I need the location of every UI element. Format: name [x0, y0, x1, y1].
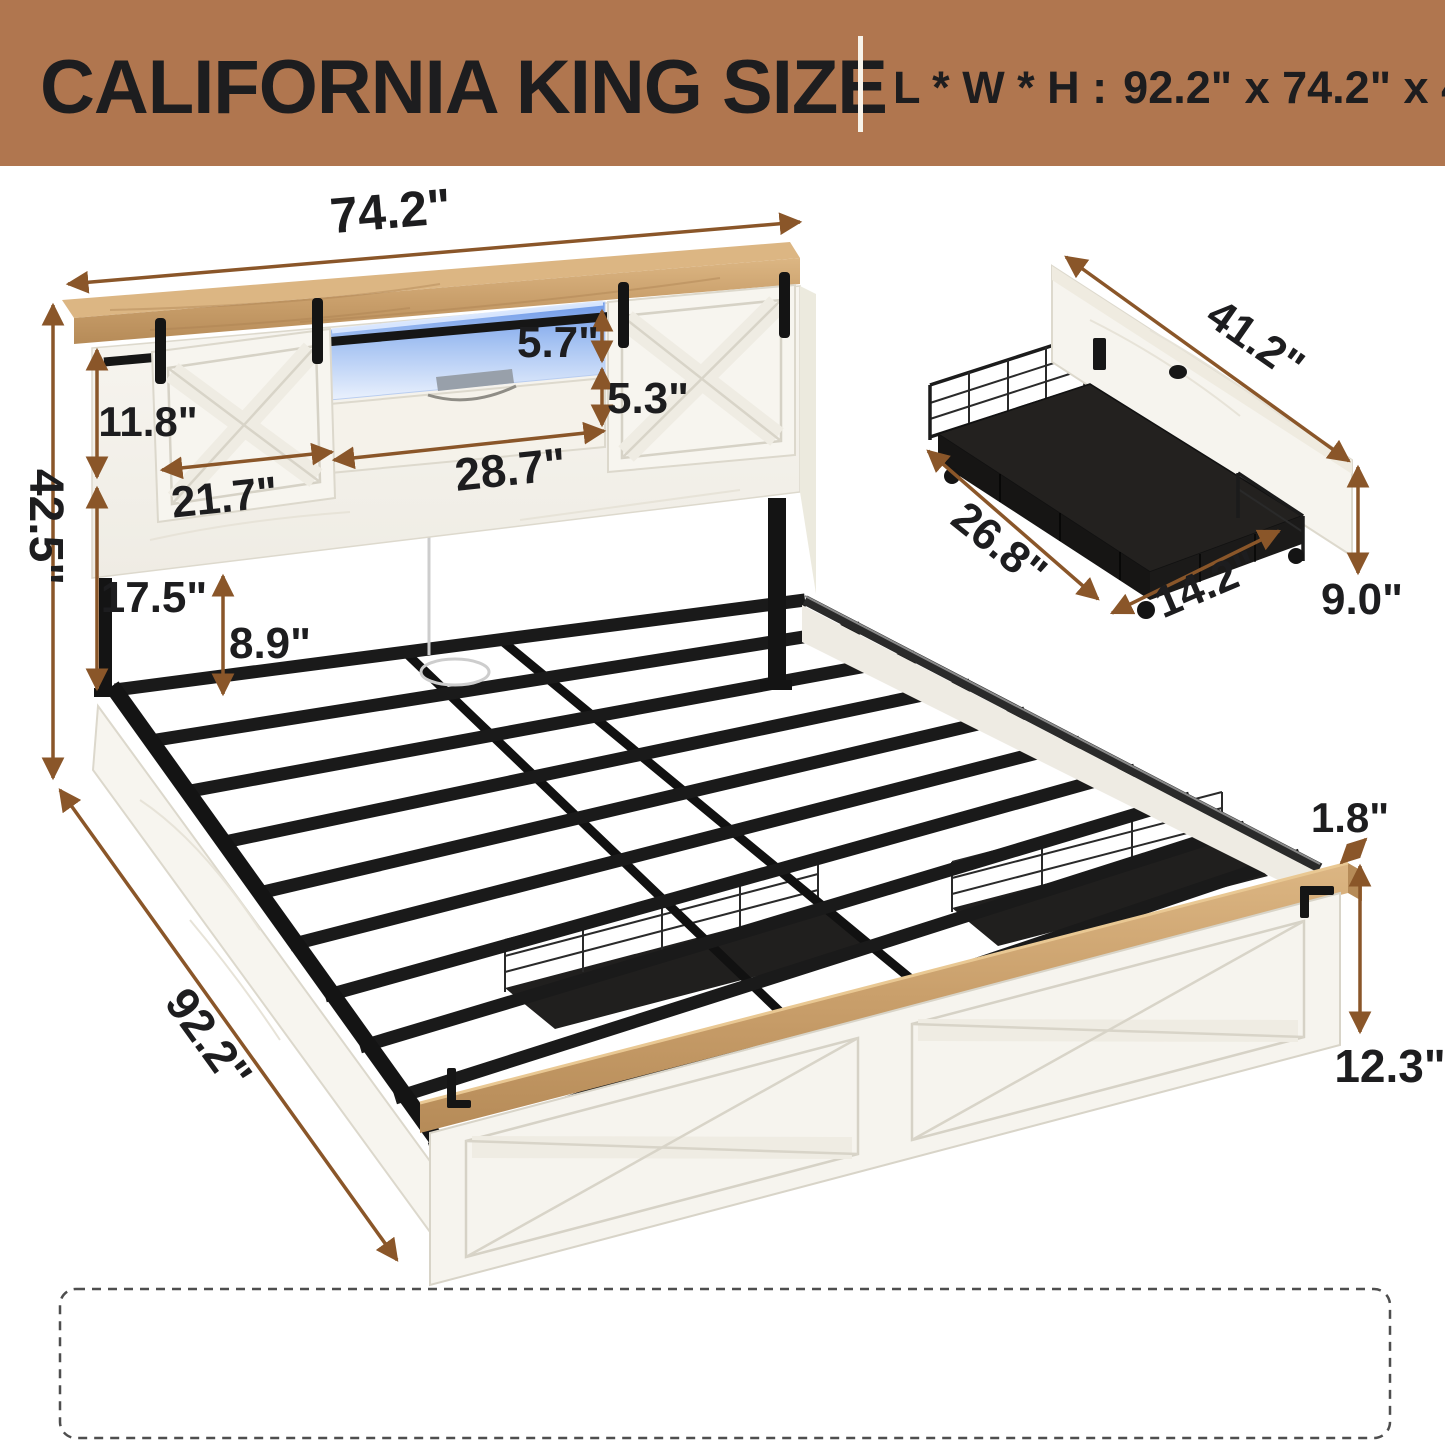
banner-lwh-label: L * W * H : — [893, 62, 1107, 113]
dim-barn-door-height-label: 11.8" — [98, 398, 197, 445]
banner: CALIFORNIA KING SIZE L * W * H :92.2" x … — [0, 0, 1445, 166]
dim-underbed-clearance-label: 8.9" — [229, 619, 311, 668]
product-dimension-image: CALIFORNIA KING SIZE L * W * H :92.2" x … — [0, 0, 1445, 1445]
banner-lwh-value: 92.2" x 74.2" x 42.5" — [1123, 62, 1445, 113]
dim-footboard-trim-thickness-arrow — [1341, 839, 1366, 863]
dim-shelf-drawer-height: 5.3" — [602, 369, 689, 425]
headboard-side-edge — [800, 286, 816, 594]
dim-footboard-height: 12.3" — [1334, 866, 1445, 1092]
drawer-bracket — [1093, 338, 1106, 370]
banner-divider — [858, 36, 863, 132]
power-cable — [421, 537, 489, 685]
dim-footboard-height-label: 12.3" — [1334, 1040, 1445, 1092]
dim-shelf-drawer-height-label: 5.3" — [607, 374, 689, 423]
banner-title: CALIFORNIA KING SIZE — [40, 45, 887, 130]
dim-footboard-trim-thickness: 1.8" — [1311, 794, 1389, 863]
dim-shelf-opening-height-label: 5.7" — [517, 318, 599, 367]
headboard-leg-right — [760, 498, 792, 690]
dim-footboard-trim-thickness-label: 1.8" — [1311, 794, 1389, 841]
banner-lwh-text: L * W * H :92.2" x 74.2" x 42.5" — [893, 62, 1445, 113]
dim-bed-length-label: 92.2" — [155, 978, 263, 1099]
dim-shelf-opening-height: 5.7" — [517, 311, 602, 367]
dim-overall-height: 42.5" — [19, 305, 72, 778]
dim-overall-height-label: 42.5" — [19, 469, 72, 585]
dim-headboard-width-label: 74.2" — [328, 178, 453, 244]
dim-drawer-height-label: 9.0" — [1321, 575, 1403, 624]
drawer-knob — [1169, 365, 1187, 379]
variant-placeholder-box — [60, 1289, 1390, 1438]
dim-headboard-lower-height-label: 17.5" — [101, 573, 208, 622]
side-rail-left — [93, 686, 442, 1232]
